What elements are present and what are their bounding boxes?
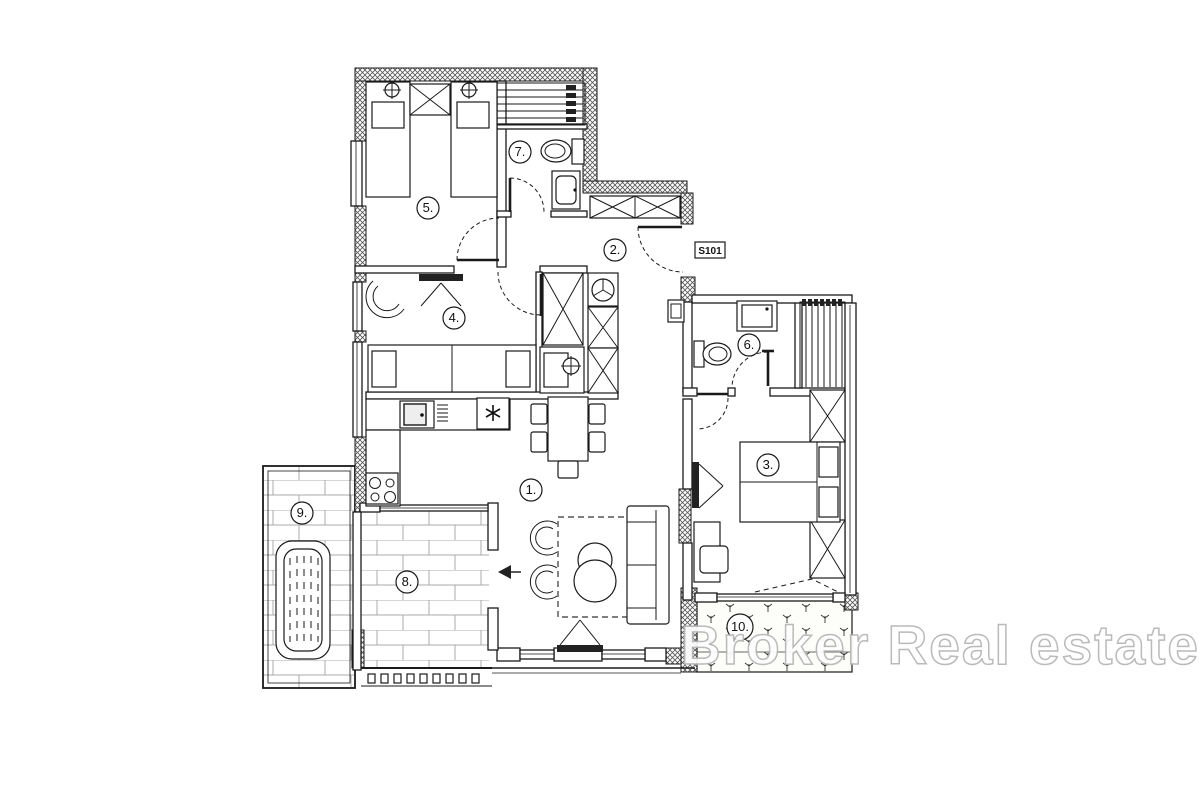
tv-icon <box>419 274 463 306</box>
terrace-door-arrow <box>498 565 521 579</box>
door-room4 <box>498 272 541 316</box>
svg-text:7.: 7. <box>515 144 526 159</box>
desk-icon <box>694 522 728 582</box>
svg-text:S101: S101 <box>698 246 722 257</box>
door-room6 <box>732 351 774 388</box>
window-left-room5 <box>351 141 362 206</box>
armchair-icon <box>366 281 404 318</box>
svg-text:4.: 4. <box>449 310 460 325</box>
wardrobe-icon <box>590 196 680 218</box>
bathtub-icon <box>276 541 330 659</box>
nightstand-icon <box>410 84 450 115</box>
bed-icon <box>451 82 497 197</box>
sofa-bed-icon <box>368 345 536 392</box>
entry-door-label: S101 <box>695 242 725 258</box>
window-living-south-2 <box>602 650 645 659</box>
intercom-icon <box>668 300 684 322</box>
dishwasher-icon <box>477 398 509 429</box>
coffee-table-icon <box>574 543 616 602</box>
light-shaft <box>800 299 845 388</box>
room-label-9: 9. <box>291 502 313 524</box>
floor-plan-page: 1. 2. 3. 4. 5. 6. 7. 8. 9. 10. S101 Brok… <box>0 0 1200 800</box>
room-label-2: 2. <box>604 239 626 261</box>
door-room7 <box>510 178 544 212</box>
stove-icon <box>366 473 398 504</box>
bed-icon <box>366 82 410 197</box>
door-room3 <box>697 394 728 429</box>
boiler-icon <box>588 273 618 306</box>
floor-plan-drawing: 1. 2. 3. 4. 5. 6. 7. 8. 9. 10. S101 Brok… <box>0 0 1200 800</box>
tilt-window-marker <box>755 579 838 592</box>
svg-text:3.: 3. <box>763 457 774 472</box>
sink-icon <box>737 301 777 331</box>
toilet-icon <box>541 139 584 164</box>
svg-text:5.: 5. <box>423 200 434 215</box>
terrace-8-floor <box>361 510 489 668</box>
room-label-7: 7. <box>509 141 531 163</box>
armchair-icon <box>530 565 557 599</box>
railing <box>361 668 492 686</box>
room-label-4: 4. <box>443 307 465 329</box>
room-label-3: 3. <box>757 454 779 476</box>
cabinet-icon <box>588 307 618 348</box>
room-label-1: 1. <box>520 479 542 501</box>
room-label-6: 6. <box>738 334 760 356</box>
room-label-8: 8. <box>396 571 418 593</box>
window-living-south-1 <box>520 650 554 659</box>
window-left-kitchen <box>353 342 362 437</box>
staircase-icon <box>497 83 585 125</box>
door-room5 <box>457 218 499 260</box>
wardrobe-icon <box>810 520 845 578</box>
window-room3-south <box>717 594 833 601</box>
dining-table-icon <box>531 397 605 478</box>
tv-icon <box>557 620 603 652</box>
window-left-room4 <box>353 282 362 331</box>
tv-icon <box>692 462 723 508</box>
armchair-icon <box>530 521 557 555</box>
svg-text:9.: 9. <box>297 505 308 520</box>
svg-text:8.: 8. <box>402 574 413 589</box>
entry-door <box>638 227 683 272</box>
svg-text:6.: 6. <box>744 337 755 352</box>
double-bed-icon <box>740 442 840 522</box>
sofa-icon <box>627 506 669 624</box>
toilet-icon <box>694 341 731 367</box>
wardrobe-icon <box>543 273 583 345</box>
cabinet-icon <box>588 348 618 393</box>
dresser-icon <box>540 347 584 393</box>
svg-text:2.: 2. <box>610 242 621 257</box>
sink-icon <box>552 171 580 209</box>
watermark-text: Broker Real estate <box>681 614 1200 676</box>
svg-text:1.: 1. <box>526 482 537 497</box>
wardrobe-icon <box>810 390 845 442</box>
room-label-5: 5. <box>417 197 439 219</box>
